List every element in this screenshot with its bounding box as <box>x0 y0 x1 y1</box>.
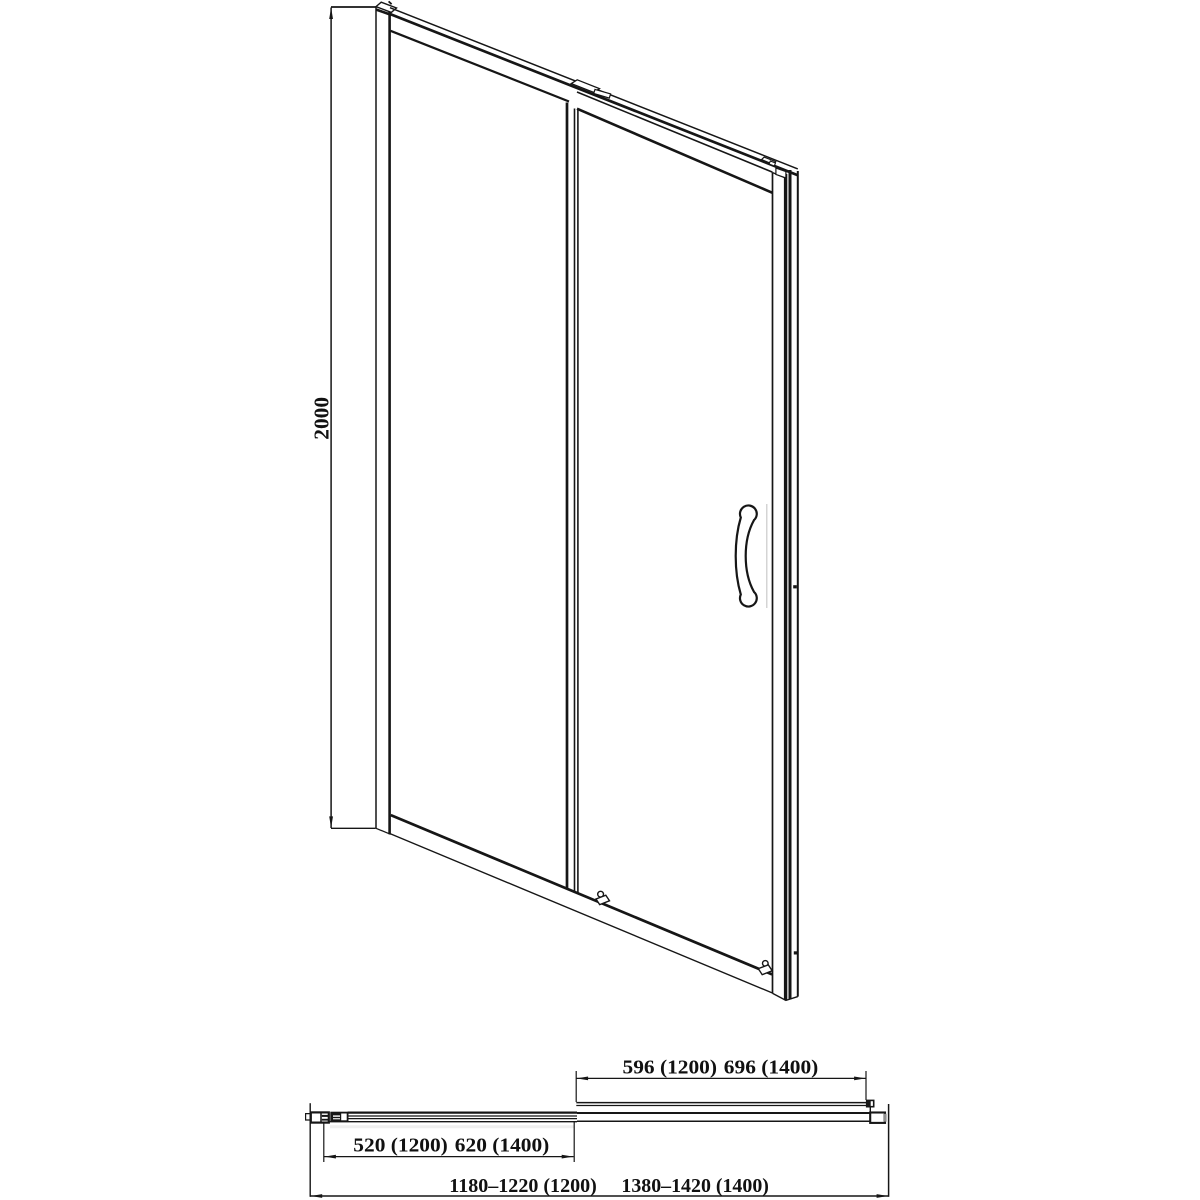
svg-text:596 (1200): 596 (1200) <box>623 1058 718 1079</box>
svg-text:1380–1420 (1400): 1380–1420 (1400) <box>621 1175 769 1197</box>
svg-text:696 (1400): 696 (1400) <box>724 1058 819 1079</box>
svg-text:620 (1400): 620 (1400) <box>455 1136 550 1157</box>
svg-text:2000: 2000 <box>310 397 334 440</box>
svg-text:520 (1200): 520 (1200) <box>353 1136 448 1157</box>
svg-text:1180–1220 (1200): 1180–1220 (1200) <box>449 1175 597 1197</box>
